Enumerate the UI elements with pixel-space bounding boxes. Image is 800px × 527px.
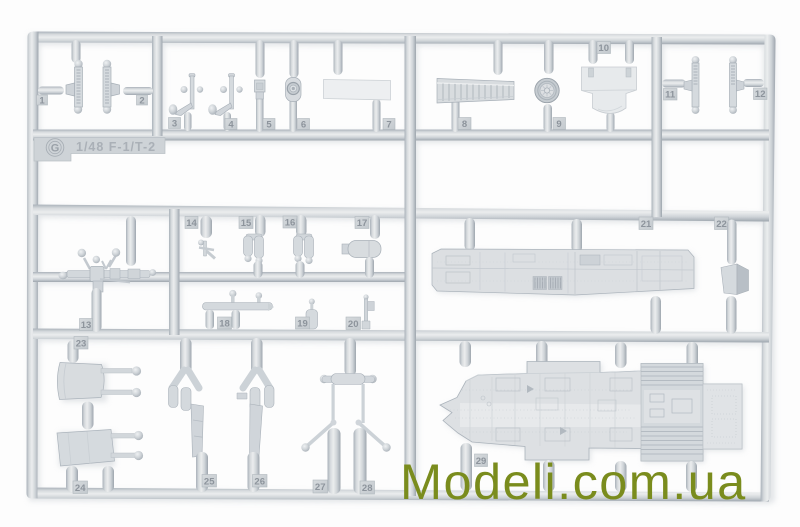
- svg-text:16: 16: [285, 218, 296, 229]
- svg-text:23: 23: [76, 338, 87, 349]
- svg-text:1: 1: [39, 96, 45, 107]
- svg-text:20: 20: [348, 319, 359, 330]
- svg-text:26: 26: [254, 476, 265, 487]
- svg-text:10: 10: [598, 43, 609, 54]
- svg-text:1/48 F-1/T-2: 1/48 F-1/T-2: [76, 140, 156, 154]
- svg-text:14: 14: [186, 218, 197, 229]
- svg-text:19: 19: [297, 319, 308, 330]
- svg-text:3: 3: [172, 119, 177, 130]
- svg-text:25: 25: [204, 476, 215, 487]
- svg-text:6: 6: [301, 120, 306, 131]
- svg-text:27: 27: [315, 482, 326, 493]
- svg-text:9: 9: [556, 119, 561, 130]
- svg-text:5: 5: [266, 120, 272, 131]
- svg-text:22: 22: [716, 219, 727, 230]
- svg-text:4: 4: [228, 120, 234, 131]
- svg-text:28: 28: [362, 483, 373, 494]
- svg-text:18: 18: [219, 319, 230, 330]
- svg-text:Modeli.com.ua: Modeli.com.ua: [400, 453, 747, 510]
- svg-text:21: 21: [641, 219, 652, 230]
- svg-text:13: 13: [81, 320, 92, 331]
- svg-text:11: 11: [665, 90, 676, 101]
- svg-text:15: 15: [241, 218, 252, 229]
- svg-text:2: 2: [139, 96, 144, 107]
- svg-text:7: 7: [386, 120, 391, 131]
- svg-text:24: 24: [75, 483, 86, 494]
- svg-text:8: 8: [462, 119, 467, 130]
- svg-text:12: 12: [755, 89, 766, 100]
- svg-text:17: 17: [357, 218, 368, 229]
- svg-text:G: G: [51, 143, 60, 155]
